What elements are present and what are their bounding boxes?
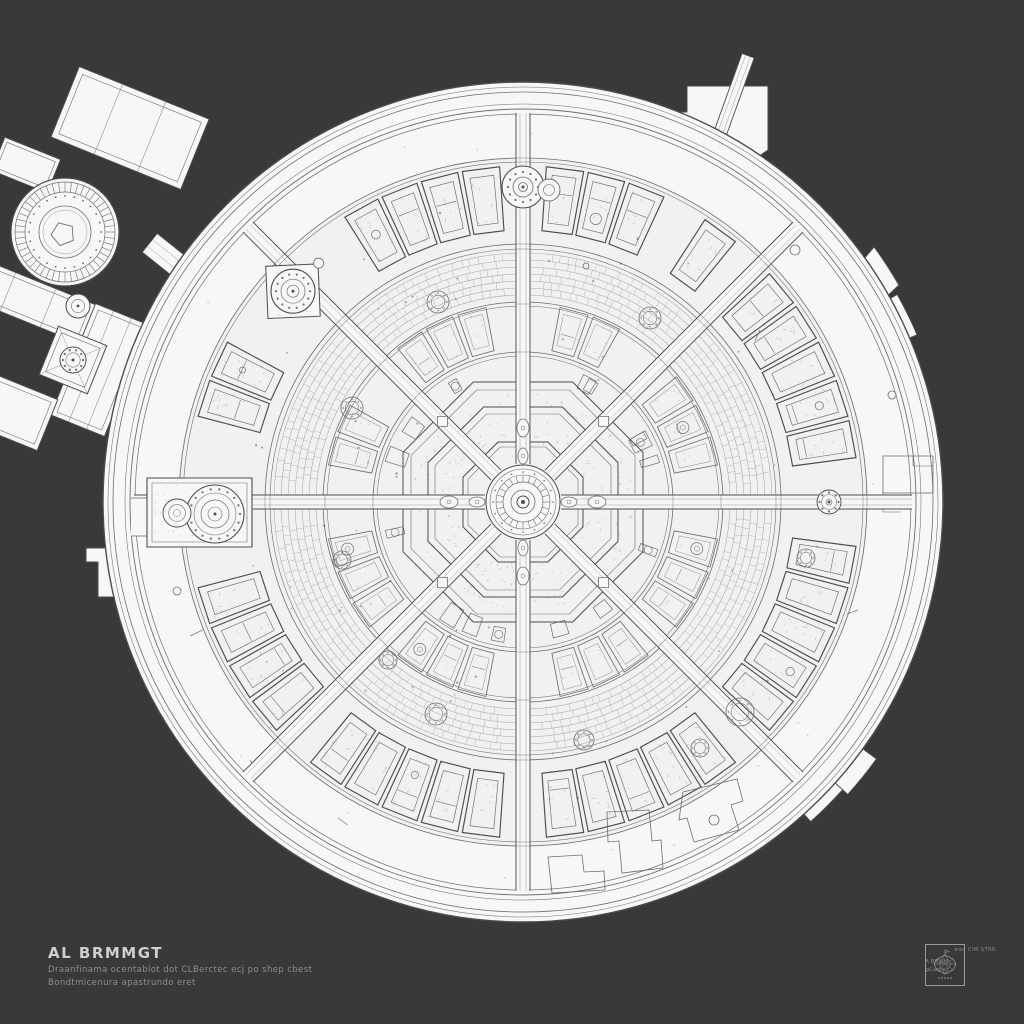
circular-plan-drawing xyxy=(0,0,1024,1024)
title-block: AL BRMMGT Draanfinama ocentablot dot CLB… xyxy=(48,944,312,988)
plan-subtitle-line2: Bondtmicenura apastrundo eret xyxy=(48,978,312,988)
stamp-emblem-icon xyxy=(925,944,965,986)
stamp-block: A BRSIM gCarvali wwr CIM STRR xyxy=(925,944,996,974)
plan-subtitle-line1: Draanfinama ocentablot dot CLBerctec ecj… xyxy=(48,965,312,975)
blueprint-canvas: AL BRMMGT Draanfinama ocentablot dot CLB… xyxy=(0,0,1024,1024)
plan-title: AL BRMMGT xyxy=(48,944,312,962)
